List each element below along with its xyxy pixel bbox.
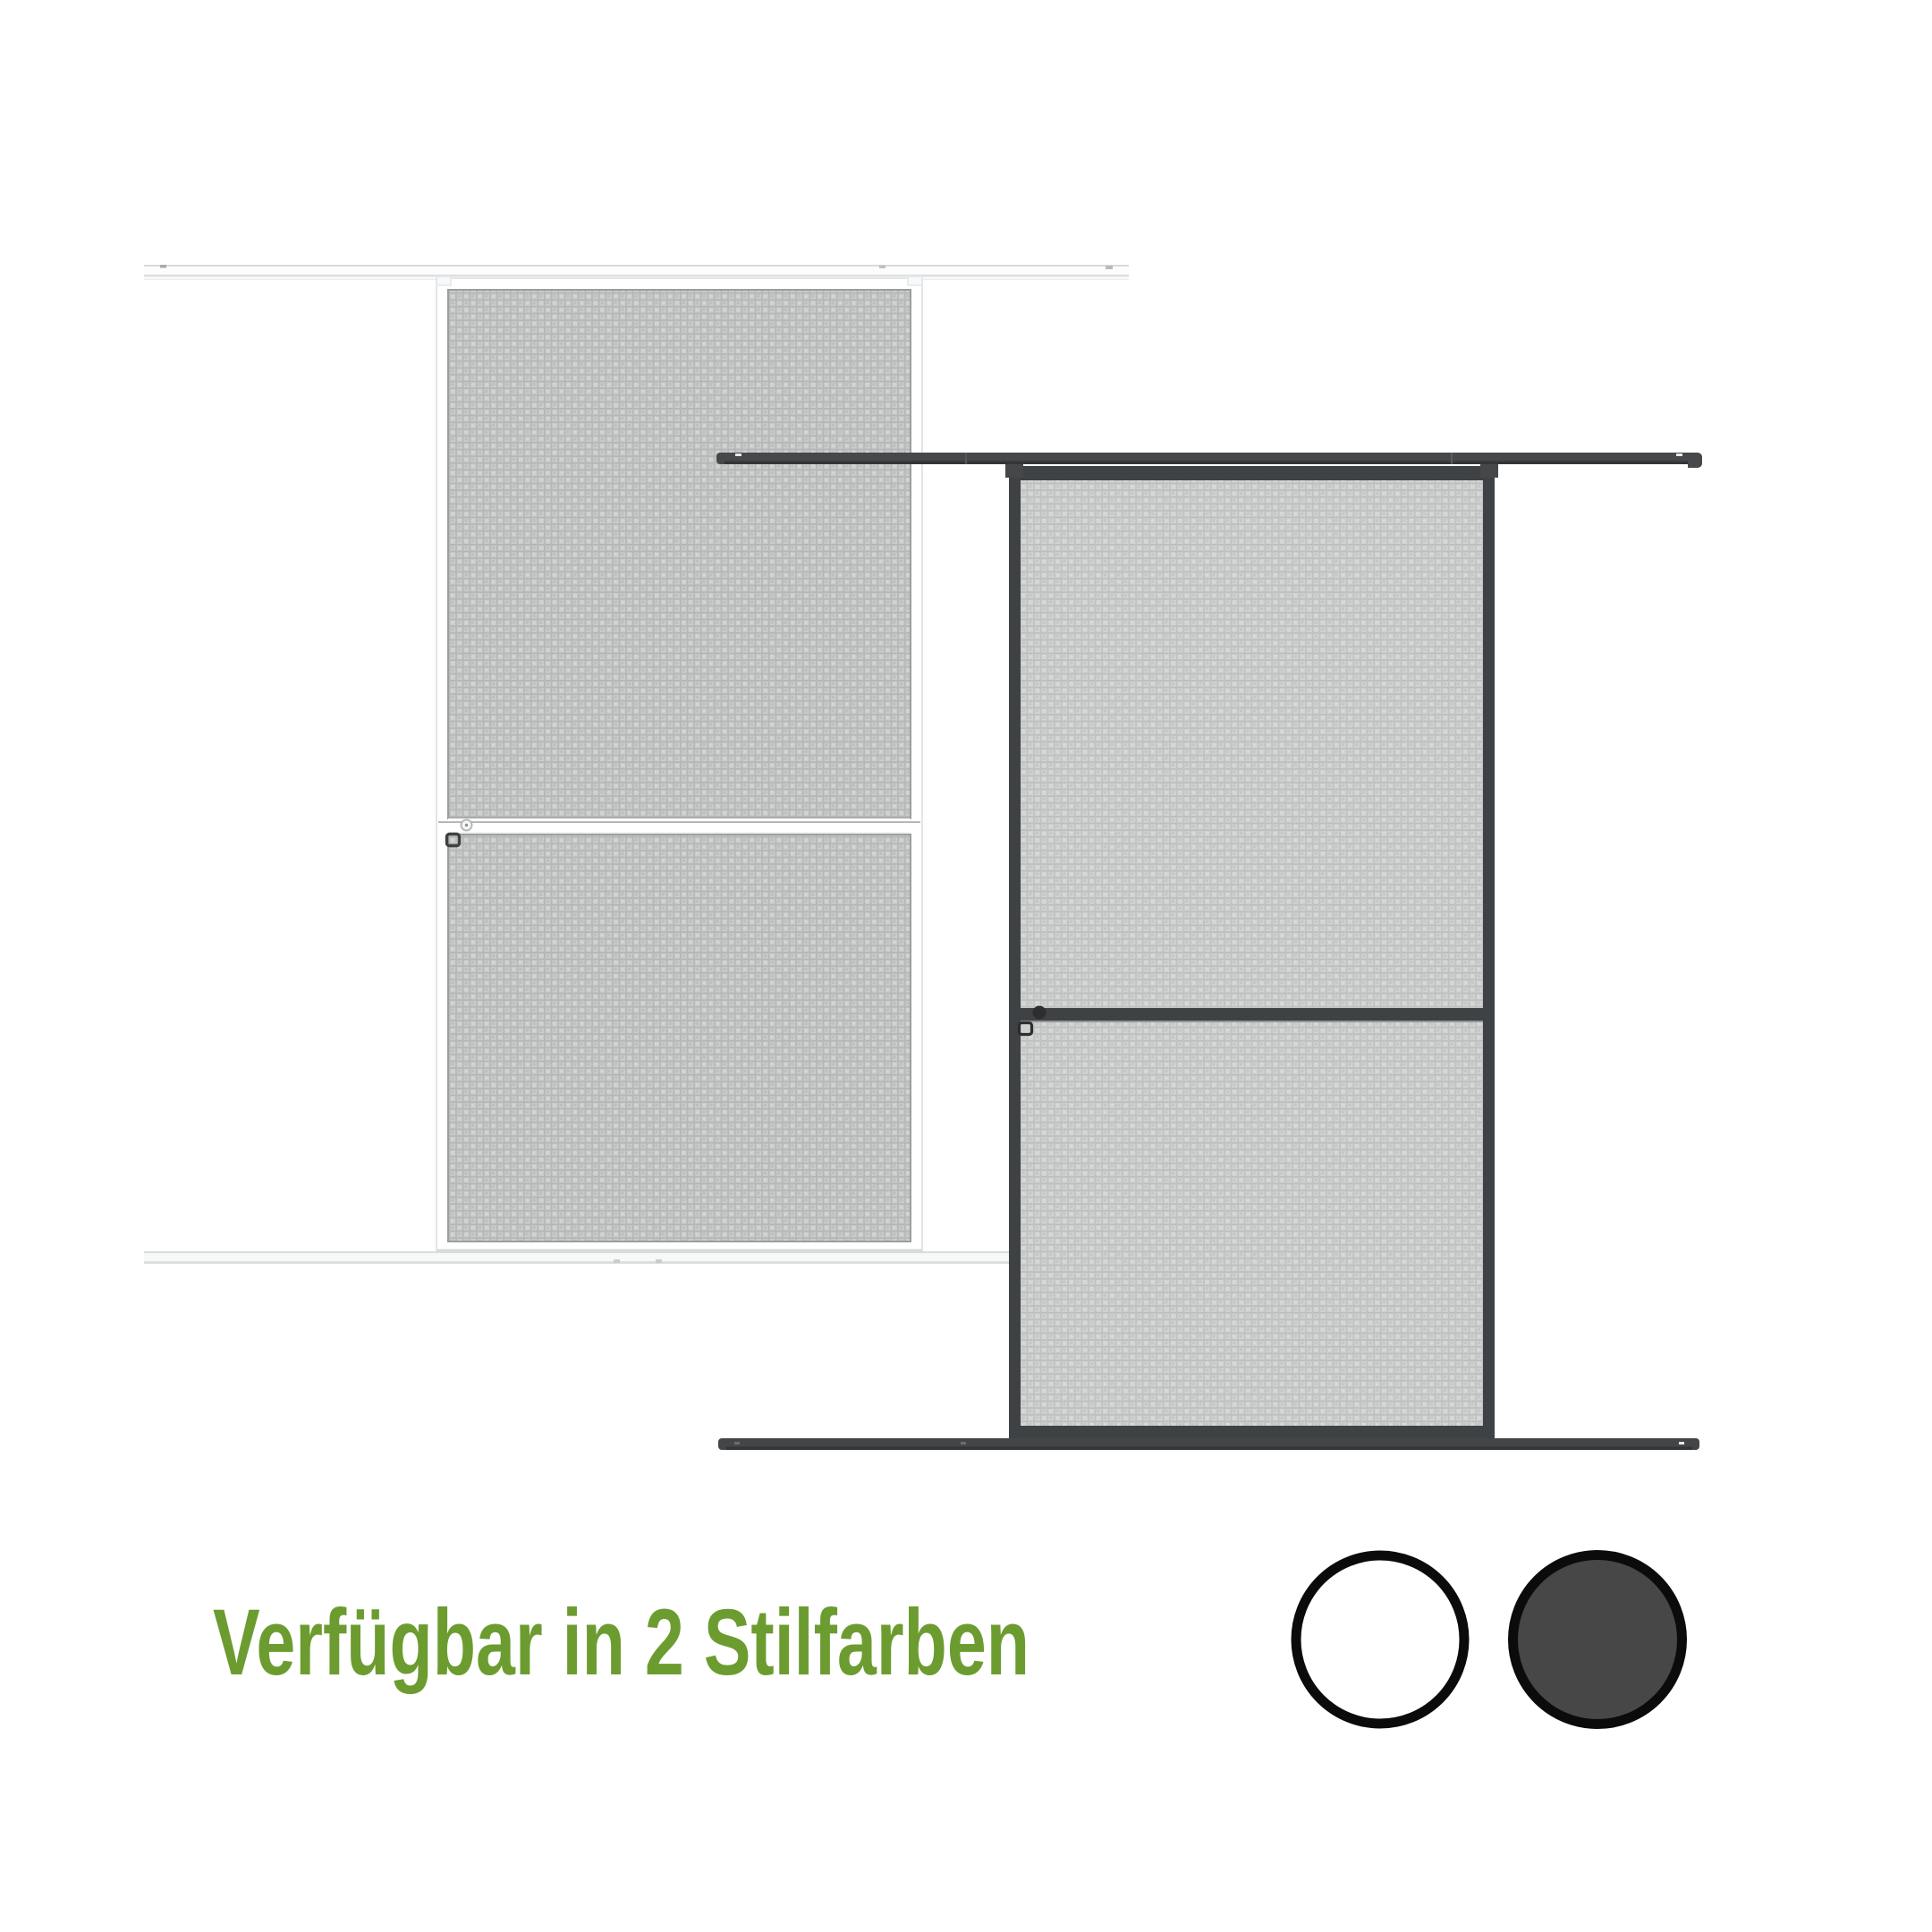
- svg-text:Verfügbar in 2 Stilfarben: Verfügbar in 2 Stilfarben: [213, 1590, 1030, 1695]
